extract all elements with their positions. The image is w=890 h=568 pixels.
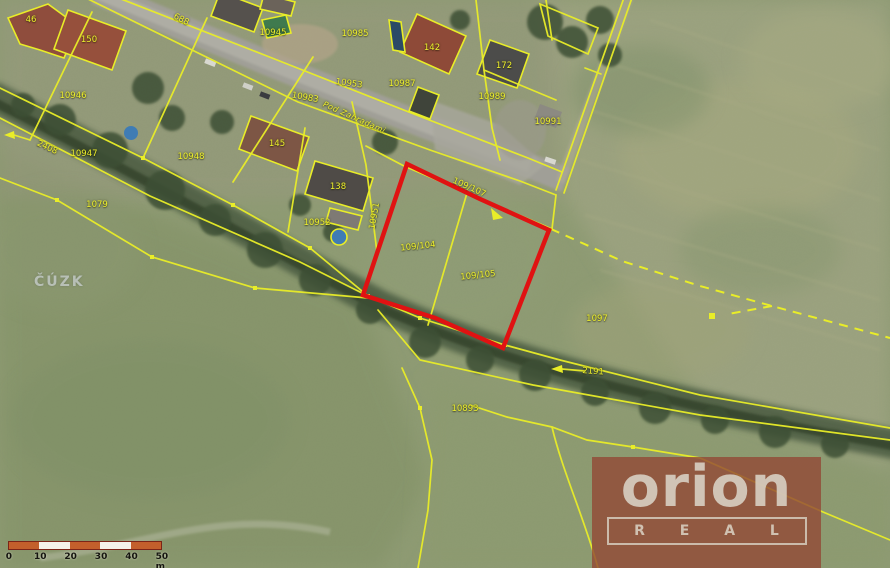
parcel-label: 2191 — [582, 367, 604, 377]
parcel-label: 10945 — [259, 29, 286, 38]
brand-name: orion — [621, 459, 793, 516]
parcel-label: 10987 — [388, 80, 415, 89]
parcel-label: 10947 — [70, 150, 97, 159]
scale-bar-segments — [8, 541, 162, 550]
parcel-label: 10991 — [534, 118, 561, 127]
parcel-label: 142 — [424, 44, 440, 53]
scale-segment — [9, 542, 39, 549]
scale-tick: 10 — [34, 552, 47, 562]
parcel-label: 150 — [81, 36, 97, 45]
scale-tick: 20 — [64, 552, 77, 562]
parcel-label: 10952 — [303, 219, 330, 228]
parcel-label: 46 — [26, 16, 37, 25]
scale-tick: 50 m — [156, 552, 169, 568]
scale-tick: 0 — [6, 552, 12, 562]
parcel-label: 10948 — [177, 153, 204, 162]
parcel-label: 10946 — [59, 92, 86, 101]
parcel-label: 1097 — [586, 315, 608, 324]
scale-tick: 30 — [95, 552, 108, 562]
scale-segment — [100, 542, 130, 549]
scale-segment — [39, 542, 69, 549]
parcel-label: 1079 — [86, 201, 108, 210]
parcel-label: 172 — [496, 62, 512, 71]
scale-segment — [131, 542, 161, 549]
parcel-label: 138 — [330, 183, 346, 192]
parcel-label: 10893 — [451, 405, 478, 414]
parcel-label: 145 — [269, 140, 285, 149]
map-viewport: 4615068810945109851421721095310987109831… — [0, 0, 890, 568]
cuzk-watermark: ČÚZK — [34, 274, 85, 290]
parcel-label: 10989 — [478, 93, 505, 102]
dashed-line-end-marker — [709, 313, 715, 319]
brand-subtitle: R E A L — [607, 517, 807, 545]
parcel-label: 10985 — [341, 30, 368, 39]
scale-bar: 01020304050 m — [8, 541, 170, 565]
scale-segment — [70, 542, 100, 549]
orion-real-logo: orion R E A L — [592, 457, 821, 568]
scale-tick: 40 — [125, 552, 138, 562]
scale-tick-labels: 01020304050 m — [8, 552, 170, 564]
